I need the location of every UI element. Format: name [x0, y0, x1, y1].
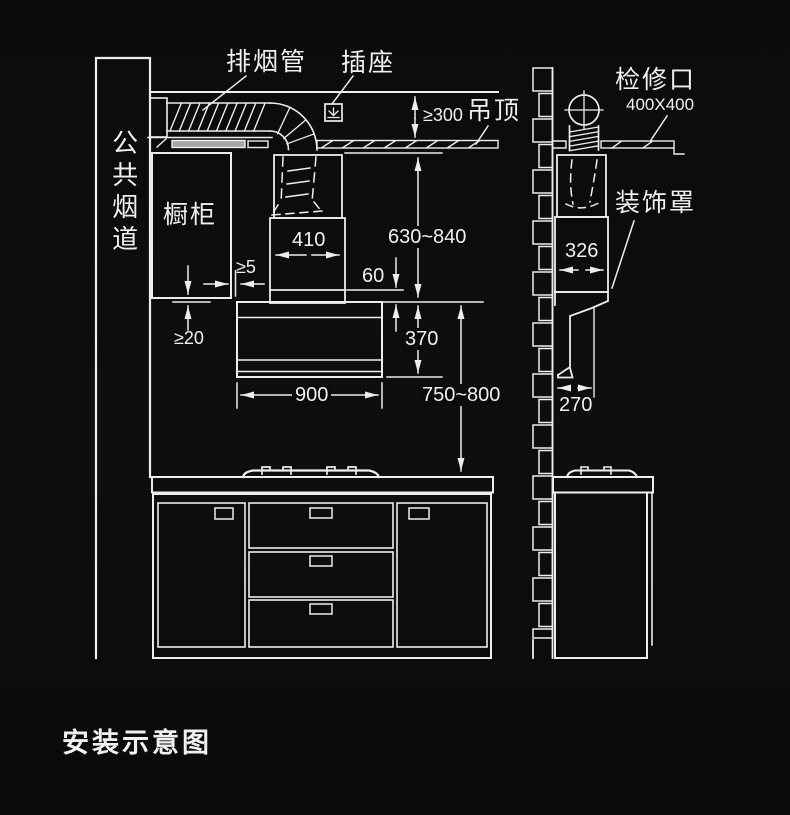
dim-side-clearance-text: ≥5 — [236, 258, 256, 278]
ceiling-label: 吊顶 — [467, 98, 521, 126]
dim-bottom-clearance-text: ≥20 — [174, 329, 204, 349]
ceiling-hatching — [322, 141, 479, 148]
hood-body-front — [237, 302, 382, 377]
door-handle — [409, 508, 429, 519]
drawer-handle — [310, 604, 332, 614]
wall-cabinet-label: 橱柜 — [163, 202, 217, 230]
cooktop-side — [567, 467, 637, 477]
diagram-title: 安装示意图 — [62, 729, 212, 759]
dim-hood-height-range-text: 630~840 — [385, 226, 469, 248]
door-handle — [215, 508, 233, 519]
dim-body-width-text: 900 — [292, 384, 331, 406]
socket-label: 插座 — [341, 50, 395, 78]
ceiling-side — [553, 141, 684, 154]
dim-body-height-text: 370 — [402, 328, 441, 350]
hood-side-profile — [555, 292, 608, 397]
dim-side-cover-width-text: 326 — [565, 240, 598, 262]
dim-ceiling-clearance-text: ≥300 — [423, 106, 463, 126]
base-cabinet-front — [153, 494, 491, 658]
dim-side-depth-text: 270 — [559, 394, 592, 416]
flex-duct-front — [271, 157, 322, 216]
diagram-linework — [0, 0, 790, 815]
public-flue-label: 公共烟道 — [109, 129, 138, 257]
duct-hatching — [170, 104, 265, 131]
exhaust-pipe-label: 排烟管 — [226, 49, 307, 77]
inspection-port-label: 检修口 — [615, 67, 696, 95]
cooktop-front — [243, 467, 379, 477]
duct-collar — [150, 98, 167, 137]
base-cabinet-side — [555, 493, 652, 659]
flex-duct-side — [566, 160, 602, 208]
socket-icon — [325, 104, 342, 121]
drawer-handle — [310, 556, 332, 566]
dim-counter-height-range-text: 750~800 — [419, 384, 503, 406]
brick-wall-section — [533, 68, 553, 658]
dim-cover-width-text: 410 — [292, 229, 325, 251]
countertop-front — [152, 477, 493, 493]
drawer-handle — [310, 508, 332, 518]
installation-diagram: 排烟管 插座 吊顶 ≥300 公共烟道 橱柜 410 630~840 60 ≥5… — [0, 0, 790, 815]
duct-coil — [570, 127, 599, 151]
decorative-cover-label: 装饰罩 — [615, 190, 696, 218]
chimney-cover-side — [555, 155, 608, 292]
round-duct-top — [565, 91, 603, 151]
inspection-port-size-label: 400X400 — [626, 96, 694, 115]
suspended-ceiling-front — [157, 139, 498, 153]
countertop-side — [553, 477, 653, 493]
dim-overlap-text: 60 — [362, 265, 384, 287]
